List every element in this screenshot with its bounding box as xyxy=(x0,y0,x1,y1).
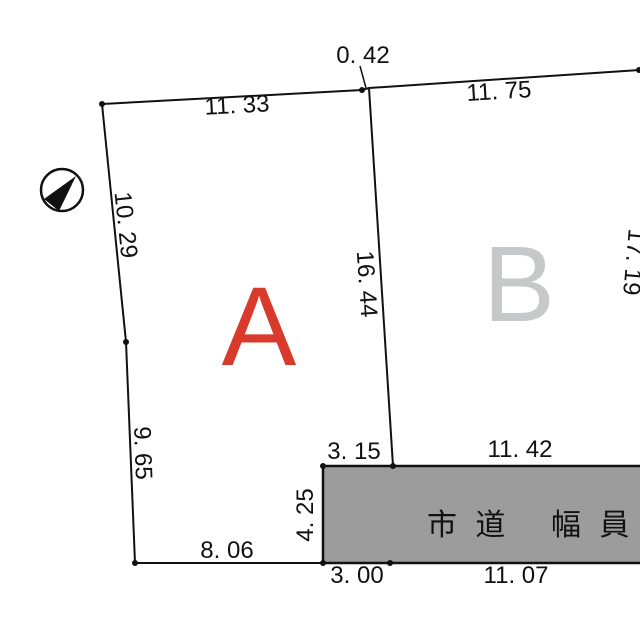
parcel-b-label: B xyxy=(483,230,555,338)
parcel-a-label: A xyxy=(222,271,297,383)
dim-left-lower: 9. 65 xyxy=(127,426,157,480)
dim-center-divider: 16. 44 xyxy=(350,250,383,319)
north-arrow-icon xyxy=(41,169,83,211)
dim-bottom-a: 8. 06 xyxy=(200,537,253,565)
road-name-right: 幅 員 約 xyxy=(551,500,640,544)
survey-plat-canvas: 0. 42 11. 33 11. 75 10. 29 9. 65 16. 44 … xyxy=(0,0,640,640)
dim-road-width: 4. 25 xyxy=(292,488,320,541)
dim-top-b: 11. 75 xyxy=(466,76,533,108)
dim-road-bottom-left: 3. 00 xyxy=(330,562,383,590)
dim-top-a: 11. 33 xyxy=(204,90,270,121)
road-name-left: 市 道 xyxy=(427,500,510,544)
dim-road-top-right: 11. 42 xyxy=(488,436,553,464)
dim-top-offset: 0. 42 xyxy=(336,42,389,70)
dim-road-bottom-right: 11. 07 xyxy=(484,562,549,590)
dim-road-top-left: 3. 15 xyxy=(327,438,380,466)
